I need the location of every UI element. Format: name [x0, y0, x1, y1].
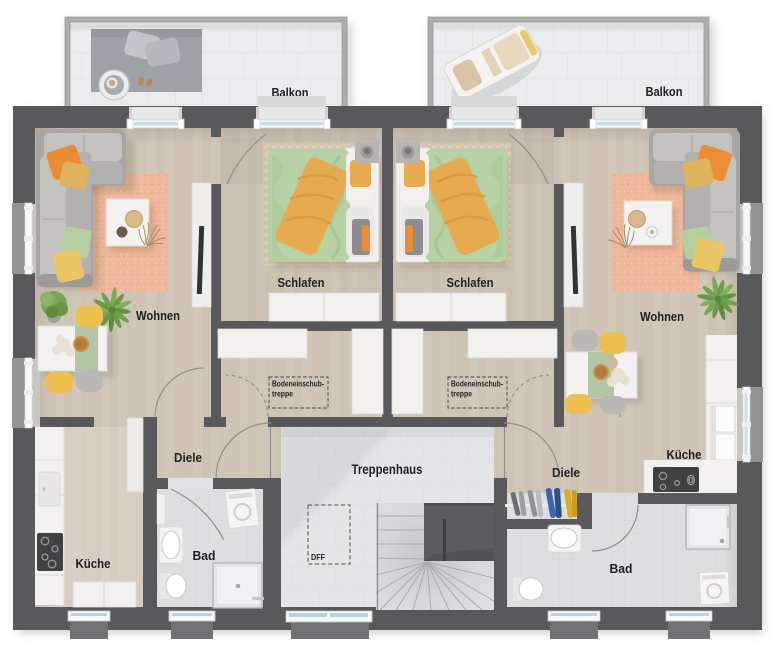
svg-text:Bodeneinschub-: Bodeneinschub-: [451, 380, 503, 389]
svg-text:Küche: Küche: [667, 448, 702, 462]
svg-text:Diele: Diele: [552, 466, 580, 480]
svg-text:Küche: Küche: [76, 557, 111, 571]
svg-text:Balkon: Balkon: [646, 85, 683, 99]
svg-text:treppe: treppe: [272, 390, 293, 399]
svg-text:Diele: Diele: [174, 451, 202, 465]
svg-text:Wohnen: Wohnen: [136, 309, 180, 323]
svg-text:Treppenhaus: Treppenhaus: [352, 462, 423, 477]
svg-text:Schlafen: Schlafen: [447, 276, 494, 290]
svg-text:DFF: DFF: [311, 552, 325, 562]
svg-text:Bad: Bad: [193, 549, 216, 563]
svg-text:Wohnen: Wohnen: [640, 310, 684, 324]
svg-text:Bad: Bad: [610, 562, 633, 576]
svg-text:Schlafen: Schlafen: [278, 276, 325, 290]
svg-text:treppe: treppe: [451, 390, 472, 399]
svg-text:Bodeneinschub-: Bodeneinschub-: [272, 380, 324, 389]
